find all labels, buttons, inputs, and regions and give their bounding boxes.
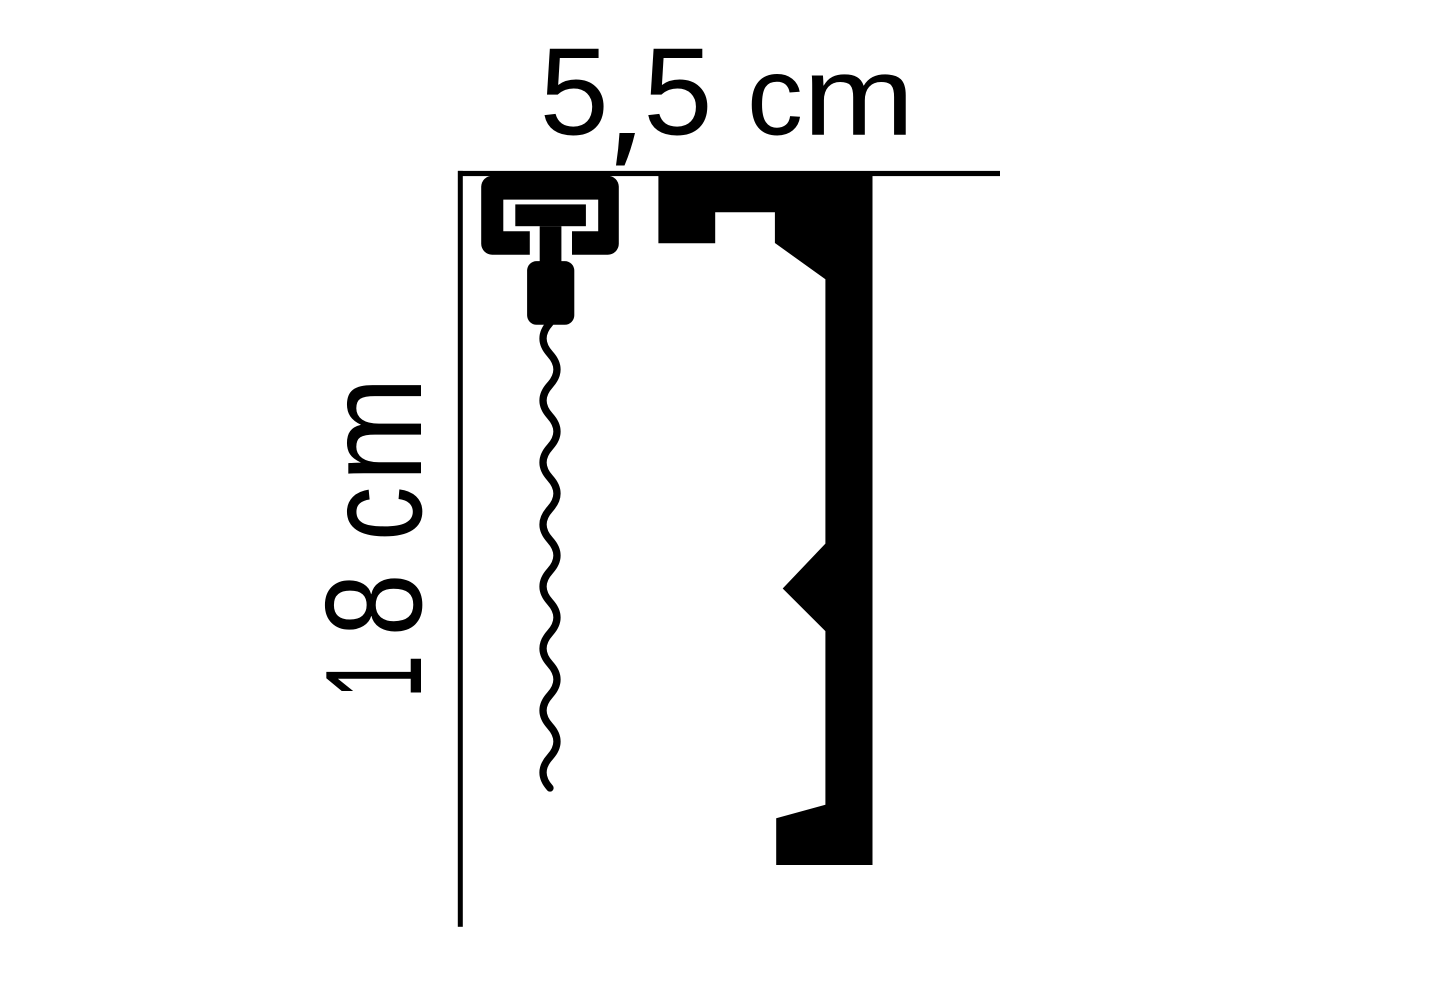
svg-text:m: m (803, 34, 915, 159)
svg-text:c: c (747, 34, 803, 159)
svg-text:5: 5 (540, 23, 609, 162)
svg-text:8: 8 (296, 573, 450, 636)
svg-text:5: 5 (643, 23, 712, 162)
svg-text:1: 1 (297, 655, 451, 699)
svg-text:m: m (296, 377, 450, 482)
svg-text:c: c (298, 486, 451, 541)
